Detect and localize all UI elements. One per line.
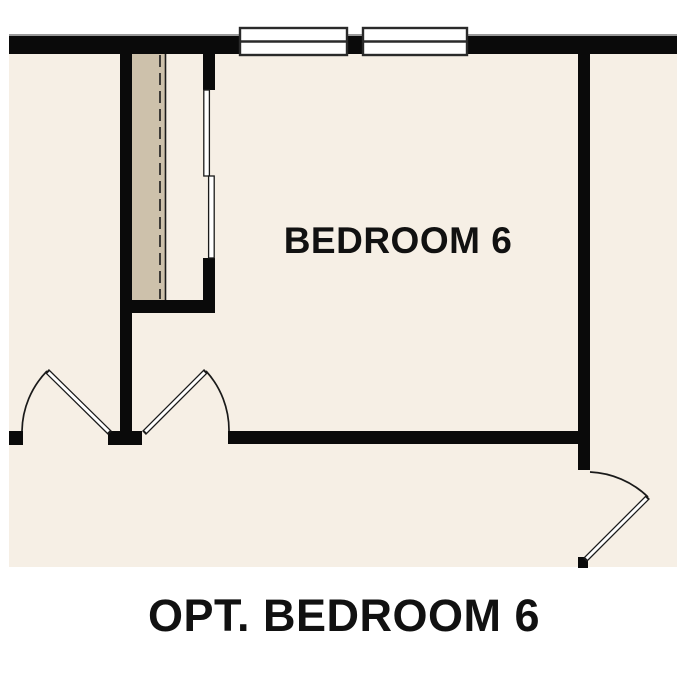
- closet-bottom-wall: [120, 300, 215, 313]
- window-icon: [240, 28, 347, 55]
- bypass-door-panel-icon: [204, 90, 210, 176]
- left-door-jamb: [9, 431, 23, 445]
- bypass-door-panel-icon: [209, 176, 215, 258]
- bottom-wall: [228, 431, 590, 444]
- room-label: BEDROOM 6: [284, 220, 513, 262]
- closet-left-wall: [120, 54, 132, 431]
- floor-plan-page: BEDROOM 6 OPT. BEDROOM 6: [0, 0, 687, 687]
- plan-caption: OPT. BEDROOM 6: [148, 590, 540, 642]
- floor-plan-drawing: [0, 0, 687, 687]
- window-icon: [363, 28, 467, 55]
- closet-opening-top-jamb: [203, 54, 215, 90]
- floor-area: [9, 36, 677, 567]
- right-wall: [578, 54, 590, 470]
- closet-opening-bottom-jamb: [203, 258, 215, 313]
- center-door-post: [108, 431, 142, 445]
